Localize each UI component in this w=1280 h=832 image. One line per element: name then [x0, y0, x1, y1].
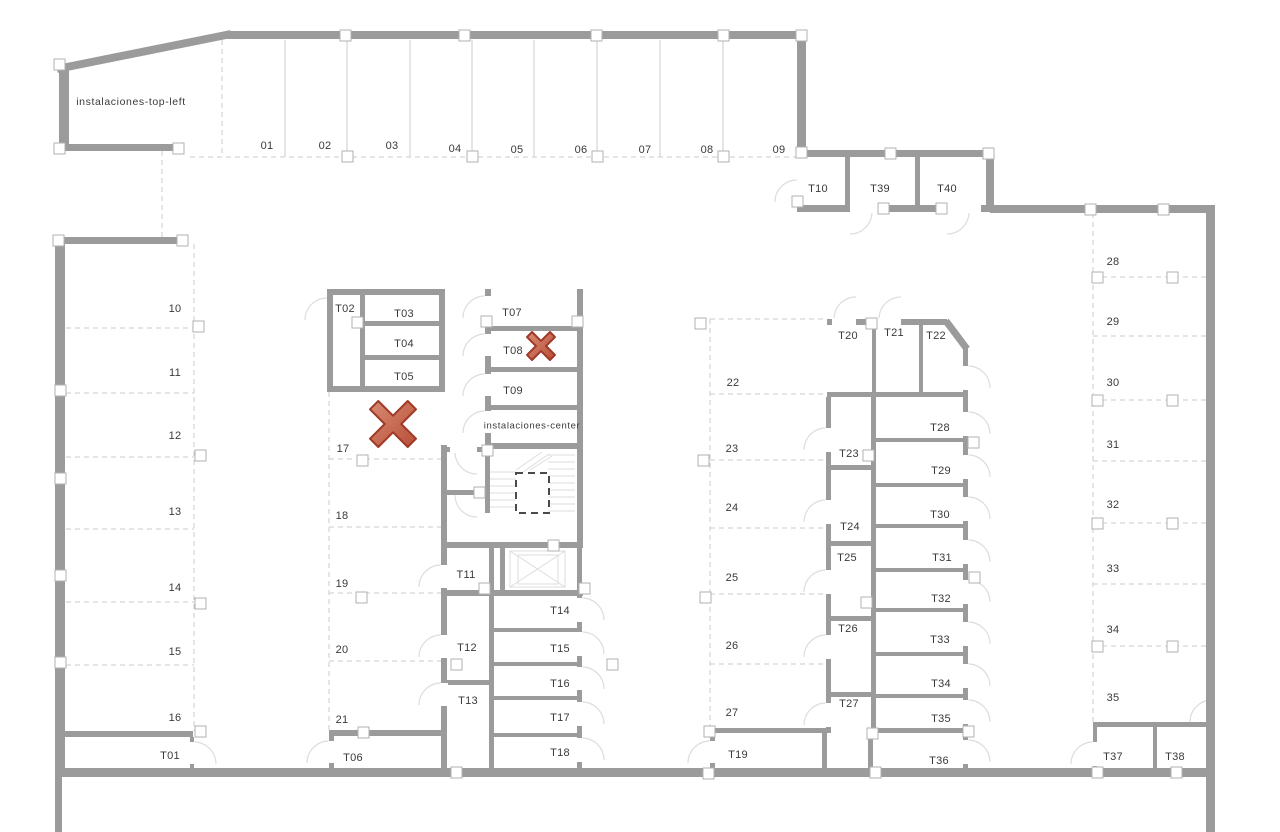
stall-dividers-top-row: [285, 40, 723, 157]
elevator: [510, 551, 565, 587]
floorplan-drawing: [0, 0, 1280, 832]
stall-dividers-dashed: [66, 40, 1206, 731]
x-mark[interactable]: [370, 401, 416, 447]
x-mark[interactable]: [527, 332, 555, 360]
walls: [55, 31, 1215, 832]
floorplan-canvas: 0102030405060708091011121314151617181920…: [0, 0, 1280, 832]
stair-void-outline: [516, 473, 549, 513]
stairs: [490, 452, 575, 511]
door-arcs: [194, 180, 1212, 764]
